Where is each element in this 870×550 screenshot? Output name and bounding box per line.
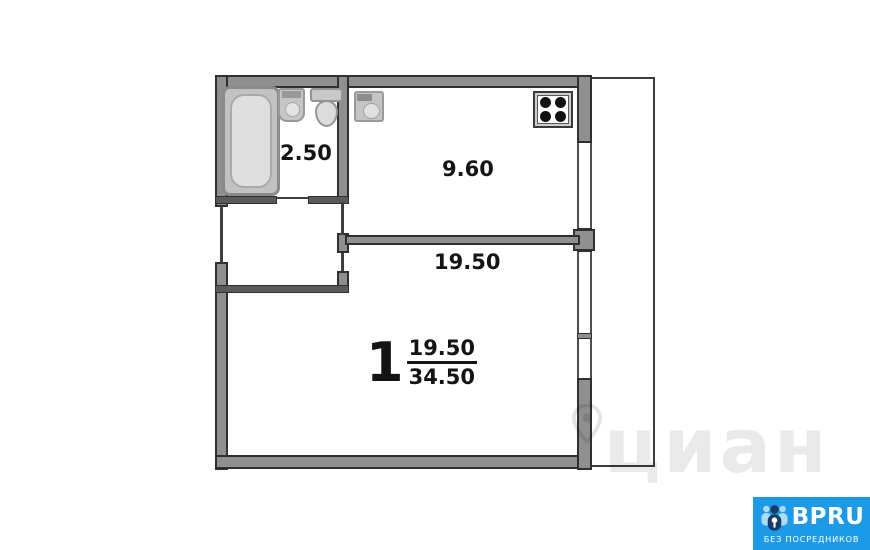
- kitchen-sink-icon: [354, 91, 384, 122]
- washbasin-icon: [278, 88, 305, 122]
- toilet-bowl: [315, 100, 338, 127]
- burner-icon: [540, 111, 551, 122]
- floor-plan-image: 2.50 9.60 19.50 1 19.50 34.50 циан: [0, 0, 870, 550]
- stove-burners: [537, 95, 569, 124]
- wall-right-lower: [577, 378, 592, 470]
- wall-left-lower: [215, 262, 228, 470]
- stove-icon: [533, 91, 573, 128]
- wall-bottom: [215, 455, 592, 469]
- brand-badge: BPRU БЕЗ ПОСРЕДНИКОВ: [753, 497, 870, 550]
- washbasin-bowl: [285, 102, 300, 117]
- burner-icon: [540, 97, 551, 108]
- brand-tagline: БЕЗ ПОСРЕДНИКОВ: [764, 534, 860, 544]
- kitchen-window: [577, 143, 592, 228]
- people-icon: [759, 504, 790, 531]
- area-fraction: 19.50 34.50: [407, 336, 477, 389]
- living-area-value: 19.50: [407, 336, 477, 364]
- brand-row: BPRU: [759, 504, 865, 531]
- living-door-line: [341, 253, 344, 271]
- wall-hall-bottom: [215, 285, 349, 293]
- bathtub-basin: [230, 94, 272, 188]
- kitchen-door-line: [341, 202, 344, 235]
- kitchen-sink-tap: [357, 94, 372, 101]
- balcony-outline: [589, 77, 655, 467]
- bathtub-icon: [222, 86, 280, 196]
- bathroom-door-line: [277, 197, 308, 199]
- total-area-value: 34.50: [407, 364, 477, 389]
- bathroom-area-label: 2.50: [280, 141, 332, 165]
- brand-name: BPRU: [792, 506, 865, 529]
- wall-bathroom-bottom-left: [215, 196, 277, 204]
- living-area-label: 19.50: [434, 250, 500, 274]
- wall-kitchen-living: [345, 235, 580, 245]
- kitchen-sink-bowl: [363, 103, 380, 119]
- burner-icon: [555, 97, 566, 108]
- washbasin-tap: [282, 91, 301, 98]
- kitchen-area-label: 9.60: [442, 157, 494, 181]
- living-window-upper: [577, 252, 592, 333]
- entry-door-line: [220, 206, 223, 263]
- wall-right-upper: [577, 75, 592, 143]
- living-window-lower: [577, 339, 592, 378]
- apartment-summary: 1 19.50 34.50: [366, 336, 477, 389]
- room-count: 1: [366, 338, 404, 388]
- burner-icon: [555, 111, 566, 122]
